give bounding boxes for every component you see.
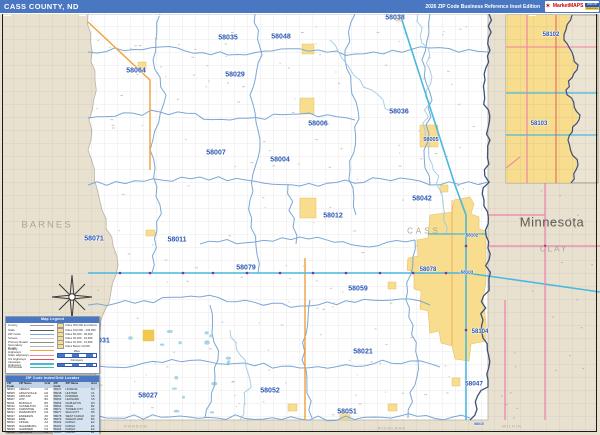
legend-city-items: Cities 250,000 and AboveCities 100,000 -… [54,324,97,370]
zip-index-left-column: ZIP CodeZIP NameGrid58004AMENIAC258005AR… [6,382,53,435]
title-bar: CASS COUNTY, ND 2026 ZIP Code Business R… [0,0,600,14]
legend-item-toll-roads: Toll Roads [8,366,54,370]
scale-bar-kilometers: Kilometers [57,359,97,367]
scale-bar-miles: Miles [57,350,97,358]
map-legend: Map Legend CountyStateZIP CodeStreetsPri… [5,316,100,374]
compass-rose [50,272,94,322]
county-zip-map-page: { "header": { "title": "CASS COUNTY, ND"… [0,0,600,435]
logo-badge: 2026 ZIP Reference [585,3,599,10]
zip-index-table: ZIP Code Index/Grid Locator ZIP CodeZIP … [5,375,100,433]
logo-brand: MarketMAPS [553,4,584,9]
zip-index-right-column: ZIP CodeZIP NameGrid58047HORACED458048HU… [53,382,100,435]
map-frame-ticks [4,15,596,17]
logo-star-icon: ✶ [545,3,551,10]
publisher-logo: ✶ MarketMAPS 2026 ZIP Reference [545,1,599,12]
edition-label: 2026 ZIP Code Business Reference Inset E… [425,4,544,10]
page-title: CASS COUNTY, ND [0,2,79,11]
legend-city-item: Cities Below 10,000 [57,345,97,349]
legend-line-items: CountyStateZIP CodeStreetsPrimary RoadsS… [8,324,54,370]
